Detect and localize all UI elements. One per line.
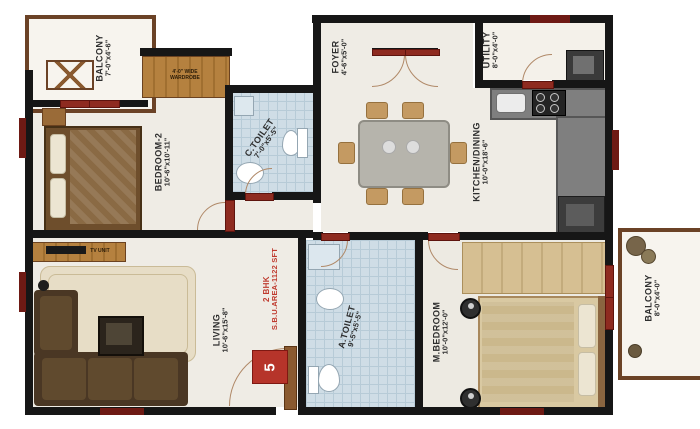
sofa-cushion (88, 358, 132, 400)
dining-chair (450, 142, 467, 164)
wall (605, 328, 613, 364)
door-arc (321, 240, 348, 267)
room-dim: 8'-0"x4'-0" (492, 32, 501, 69)
dining-chair (402, 188, 424, 205)
plant (641, 249, 656, 264)
wash-basin (316, 288, 344, 310)
room-label-utility: UTILITY 8'-0"x4'-0" (482, 32, 501, 69)
toilet-wc (318, 364, 340, 392)
plate (382, 140, 396, 154)
dining-chair (366, 102, 388, 119)
room-label-balcony-top: BALCONY 7'-0"x4'-6" (95, 34, 114, 81)
wall (272, 192, 321, 200)
room-label-living: LIVING 10'-6"x15'-8" (212, 308, 231, 353)
wall (482, 80, 522, 88)
door-foyer-leaf (405, 49, 440, 56)
door-bedroom2 (225, 200, 235, 232)
room-dim: 10'-6"x10'-11" (164, 133, 173, 192)
pillow (50, 134, 66, 174)
door-utility (522, 81, 554, 89)
blanket (70, 130, 136, 224)
balcony-bench (46, 60, 94, 90)
area-label: S.B.U.AREA-1122 SFT (271, 248, 280, 330)
door-arc (245, 168, 272, 195)
room-label-balcony-right: BALCONY 8'-0"x4'-0" (644, 274, 663, 321)
door-balcony-right-leaf (605, 265, 614, 299)
wall (225, 85, 233, 203)
wall (25, 230, 313, 238)
kitchen-sink (496, 93, 526, 113)
burner (536, 93, 545, 102)
plant (628, 344, 642, 358)
window (19, 272, 26, 312)
toilet-tank (308, 366, 319, 394)
room-label-foyer: FOYER 4'-6"x5'-0" (331, 39, 350, 76)
window (612, 130, 619, 170)
tv-unit-label: TV UNIT (90, 248, 109, 254)
window (530, 15, 570, 23)
dining-chair (366, 188, 388, 205)
room-dim: 10'-0"x18'-6" (482, 122, 491, 202)
sofa-cushion (42, 358, 86, 400)
wall (298, 407, 613, 415)
door-arc (428, 240, 458, 270)
unit-area-label: 2 BHK S.B.U.AREA-1122 SFT (262, 248, 280, 330)
refrigerator-top (566, 204, 594, 226)
window (500, 408, 544, 415)
sofa-cushion (134, 358, 178, 400)
room-dim: 10'-0"x12'-0" (442, 302, 451, 363)
floor-lamp (38, 280, 49, 291)
door-balcony-right-leaf (605, 297, 614, 330)
wall (25, 70, 33, 415)
plate (406, 140, 420, 154)
door-foyer-leaf (372, 49, 407, 56)
wardrobe-label-line2: WARDROBE (170, 75, 200, 81)
door-m-bedroom (428, 233, 460, 241)
side-table (460, 298, 481, 319)
unit-number: 5 (262, 363, 279, 371)
wardrobe: 4'-0" WIDE WARDROBE (142, 56, 230, 98)
wall (415, 238, 423, 415)
wall (32, 100, 60, 107)
wall (605, 15, 613, 243)
toilet-tank (297, 128, 308, 158)
window (100, 408, 144, 415)
room-label-m-bedroom: M.BEDROOM 10'-0"x12'-0" (432, 302, 451, 363)
dining-chair (402, 102, 424, 119)
wall (298, 238, 306, 415)
tv (46, 246, 86, 254)
burner (536, 104, 545, 113)
door-arc (372, 54, 405, 87)
floor-plan: 4'-0" WIDE WARDROBE TV UNIT (0, 0, 700, 429)
door-arc (522, 54, 552, 84)
side-table (460, 388, 481, 409)
wall (458, 232, 613, 240)
door-arc (197, 202, 225, 230)
wall (552, 80, 605, 88)
wall (25, 407, 276, 415)
pillow (50, 178, 66, 218)
room-label-kitchen-dining: KITCHEN/DINING 10'-0"x18'-6" (472, 122, 491, 202)
door-balcony-top-right-leaf (89, 100, 120, 108)
wall (348, 232, 428, 240)
dresser (462, 242, 607, 294)
room-dim: 7'-0"x4'-6" (105, 34, 114, 81)
wall (118, 100, 148, 107)
unit-number-badge: 5 (252, 350, 288, 384)
room-dim: 4'-6"x5'-0" (341, 39, 350, 76)
burner (550, 93, 559, 102)
room-dim: 8'-0"x4'-0" (654, 274, 663, 321)
corridor-floor (233, 200, 313, 230)
wall (605, 243, 613, 265)
wall (225, 192, 245, 200)
wall (313, 15, 321, 203)
wall (140, 48, 232, 56)
wall (225, 85, 321, 93)
door-arc (405, 54, 438, 87)
nightstand (42, 108, 66, 126)
dining-table (358, 120, 450, 188)
shower-tray (234, 96, 254, 116)
pillow (578, 304, 596, 348)
sofa-cushion (40, 296, 72, 350)
blanket (482, 302, 574, 402)
washing-machine-lid (573, 56, 594, 74)
door-c-toilet (245, 193, 274, 201)
pillow (578, 352, 596, 396)
room-label-bedroom2: BEDROOM-2 10'-6"x10'-11" (154, 133, 173, 192)
window (19, 118, 26, 158)
door-a-toilet (321, 233, 350, 241)
door-balcony-top-left-leaf (60, 100, 91, 108)
dining-chair (338, 142, 355, 164)
coffee-table-top (106, 323, 132, 345)
wall (605, 362, 613, 415)
burner (550, 104, 559, 113)
room-dim: 10'-6"x15'-8" (222, 308, 231, 353)
